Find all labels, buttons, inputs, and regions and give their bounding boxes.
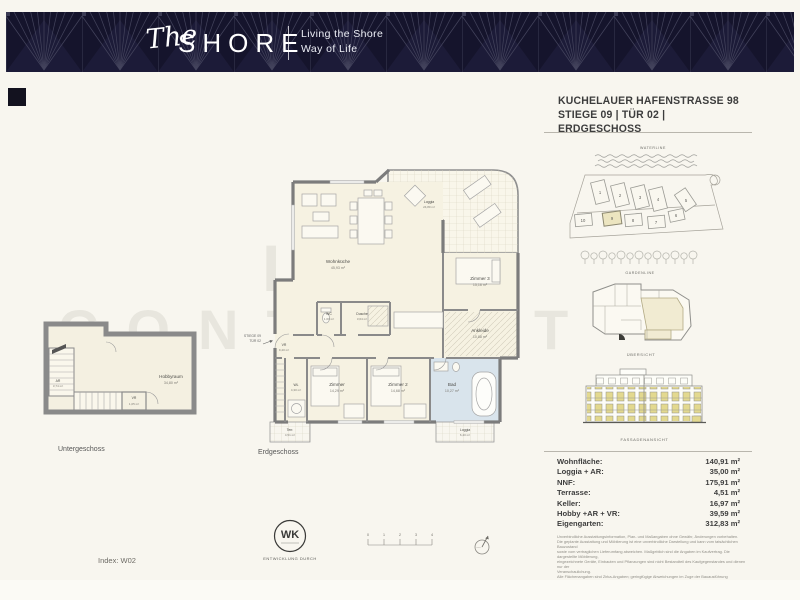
eg-room-loggia-bottom: Loggia bbox=[460, 428, 470, 432]
ug-room-hobbyraum-label: Hobbyraum bbox=[159, 374, 183, 379]
title-address: KUCHELAUER HAFENSTRASSE 98 bbox=[558, 94, 748, 108]
eg-room-zimmer: Zimmer bbox=[329, 382, 345, 387]
untergeschoss-plan: Hobbyraum 34,80 m² AR 3,74 m² VR 1,05 m² bbox=[36, 320, 211, 435]
facade-elevation bbox=[582, 366, 707, 432]
ug-room-vr-label: VR bbox=[132, 396, 137, 400]
row-value: 140,91 m² bbox=[705, 457, 740, 467]
eg-room-wohnkueche: Wohnküche bbox=[326, 259, 351, 264]
tagline-line2: Way of Life bbox=[301, 42, 383, 57]
row-value: 4,51 m² bbox=[714, 488, 740, 498]
scale-tick-0: 0 bbox=[367, 533, 369, 537]
disclaimer-line: eingezeichnete Geräte, Einbauten und Pfl… bbox=[557, 559, 747, 569]
table-row: Eigengarten:312,83 m² bbox=[557, 519, 740, 529]
scale-tick-3: 3 bbox=[415, 533, 417, 537]
scale-bar: 0 1 2 3 4 bbox=[360, 530, 445, 550]
row-label: Eigengarten: bbox=[557, 519, 603, 529]
row-label: Loggia + AR: bbox=[557, 467, 604, 477]
title-rule bbox=[544, 132, 752, 133]
facade-roofbox bbox=[620, 369, 646, 375]
corner-mark bbox=[8, 88, 26, 106]
row-value: 312,83 m² bbox=[705, 519, 740, 529]
row-value: 175,91 m² bbox=[705, 478, 740, 488]
eg-room-vr: VR bbox=[282, 343, 287, 347]
untergeschoss-caption: Untergeschoss bbox=[58, 446, 105, 453]
eg-room-bad-area: 10,27 m² bbox=[445, 389, 460, 393]
ug-room-hobbyraum-area: 34,80 m² bbox=[164, 381, 179, 385]
footer-strip bbox=[0, 580, 800, 600]
table-row: Wohnfläche:140,91 m² bbox=[557, 457, 740, 467]
tree-row bbox=[581, 251, 697, 264]
row-label: Wohnfläche: bbox=[557, 457, 602, 467]
scale-tick-1: 1 bbox=[383, 533, 385, 537]
ug-vr-room bbox=[122, 392, 146, 410]
eg-terrasse bbox=[270, 422, 310, 442]
waterline-label: WATERLINE bbox=[640, 146, 666, 150]
table-row: Terrasse:4,51 m² bbox=[557, 488, 740, 498]
table-row: Hobby +AR + VR:39,59 m² bbox=[557, 509, 740, 519]
eg-room-loggia-bottom-area: 6,40 m² bbox=[460, 433, 470, 437]
eg-entry-line1: STIEGE 09 bbox=[244, 334, 261, 338]
eg-room-wl: WL bbox=[293, 383, 298, 387]
row-value: 39,59 m² bbox=[710, 509, 740, 519]
erdgeschoss-caption: Erdgeschoss bbox=[258, 449, 298, 456]
eg-loggia-bottom bbox=[436, 422, 494, 442]
row-label: Hobby +AR + VR: bbox=[557, 509, 620, 519]
tagline-line1: Living the Shore bbox=[301, 27, 383, 42]
brand-logo: SHORE bbox=[178, 28, 305, 59]
site-plan: WATERLINE 1 bbox=[565, 143, 750, 243]
row-label: Keller: bbox=[557, 499, 581, 509]
table-row: Keller:16,97 m² bbox=[557, 499, 740, 509]
disclaimer-line: Die geplante Ausstattung und Möblierung … bbox=[557, 539, 747, 549]
eg-room-ankleide-area: 10,88 m² bbox=[473, 335, 488, 339]
eg-room-bad: Bad bbox=[448, 382, 457, 387]
site-num-10: 10 bbox=[581, 218, 586, 223]
brand-tagline: Living the Shore Way of Life bbox=[301, 27, 383, 57]
scale-ticks bbox=[368, 539, 432, 545]
overview-caption: ÜBERSICHT bbox=[585, 352, 697, 357]
eg-room-vr-area: 9,40 m² bbox=[279, 348, 289, 352]
overview-highlight-tab bbox=[645, 330, 671, 339]
eg-room-wl-area: 4,30 m² bbox=[291, 388, 301, 392]
development-label: ENTWICKLUNG DURCH bbox=[260, 556, 320, 561]
eg-room-zimmer3-area: 15,16 m² bbox=[473, 283, 488, 287]
eg-room-zimmer-area: 14,29 m² bbox=[330, 389, 345, 393]
header-banner bbox=[6, 12, 794, 72]
floorplan-sheet: The SHORE Living the Shore Way of Life K… bbox=[0, 0, 800, 600]
overview-miniplan bbox=[585, 278, 697, 350]
scale-tick-2: 2 bbox=[399, 533, 401, 537]
row-value: 35,00 m² bbox=[710, 467, 740, 477]
eg-room-wc-area: 1,60 m² bbox=[324, 317, 334, 321]
facade-caption: FASSADENANSICHT bbox=[582, 437, 707, 442]
table-rule bbox=[544, 451, 752, 452]
eg-room-zimmer2: Zimmer 2 bbox=[388, 382, 408, 387]
table-row: Loggia + AR:35,00 m² bbox=[557, 467, 740, 477]
table-row: NNF:175,91 m² bbox=[557, 478, 740, 488]
gardenline: GARDENLINE bbox=[575, 247, 705, 277]
ug-room-vr-area: 1,05 m² bbox=[129, 402, 139, 406]
site-buildings: 1 2 3 4 5 10 9 8 7 6 bbox=[575, 180, 697, 229]
row-value: 16,97 m² bbox=[710, 499, 740, 509]
ug-room-ar-area: 3,74 m² bbox=[53, 384, 63, 388]
waterline-waves bbox=[595, 155, 697, 168]
eg-ankleide-hatch bbox=[445, 312, 518, 356]
wk-logo-initials: WK bbox=[281, 529, 299, 541]
eg-room-zimmer3: Zimmer 3 bbox=[470, 276, 490, 281]
row-label: Terrasse: bbox=[557, 488, 591, 498]
north-arrow-icon bbox=[470, 533, 494, 557]
eg-room-dusche-area: 3,64 m² bbox=[357, 317, 367, 321]
artdeco-pattern bbox=[6, 12, 794, 72]
eg-room-dusche: Dusche bbox=[356, 312, 368, 316]
logo-divider bbox=[288, 26, 289, 60]
eg-entry-arrow bbox=[263, 340, 273, 344]
eg-room-loggia-top: Loggia bbox=[424, 200, 434, 204]
facade-corner-unit bbox=[692, 416, 701, 422]
eg-room-loggia-top-area: 24,80 m² bbox=[423, 205, 435, 209]
eg-room-wohnkueche-area: 45,93 m² bbox=[331, 266, 346, 270]
index-label: Index: W02 bbox=[98, 556, 136, 565]
gardenline-label: GARDENLINE bbox=[625, 271, 654, 275]
eg-room-terrasse-area: 4,51 m² bbox=[285, 433, 295, 437]
eg-room-terrasse: Terr. bbox=[287, 428, 294, 432]
ug-room-ar-label: AR bbox=[56, 379, 61, 383]
erdgeschoss-plan: STIEGE 09 TÜR 02 Wohnküche 45,93 m² Logg… bbox=[218, 160, 528, 455]
eg-room-ankleide: Ankleide bbox=[471, 328, 489, 333]
eg-room-zimmer2-area: 14,68 m² bbox=[391, 389, 406, 393]
area-table: Wohnfläche:140,91 m² Loggia + AR:35,00 m… bbox=[557, 457, 740, 530]
overview-highlight-unit bbox=[641, 298, 683, 330]
scale-tick-4: 4 bbox=[431, 533, 433, 537]
overview-entry-mark bbox=[619, 334, 625, 340]
eg-entry-line2: TÜR 02 bbox=[249, 339, 261, 343]
eg-room-wc: WC bbox=[326, 312, 332, 316]
disclaimer-line: sowie vom vertraglichen Lieferumfang abw… bbox=[557, 549, 747, 559]
wk-logo: WK bbox=[272, 518, 308, 554]
page-title: KUCHELAUER HAFENSTRASSE 98 STIEGE 09 | T… bbox=[558, 94, 748, 136]
row-label: NNF: bbox=[557, 478, 575, 488]
